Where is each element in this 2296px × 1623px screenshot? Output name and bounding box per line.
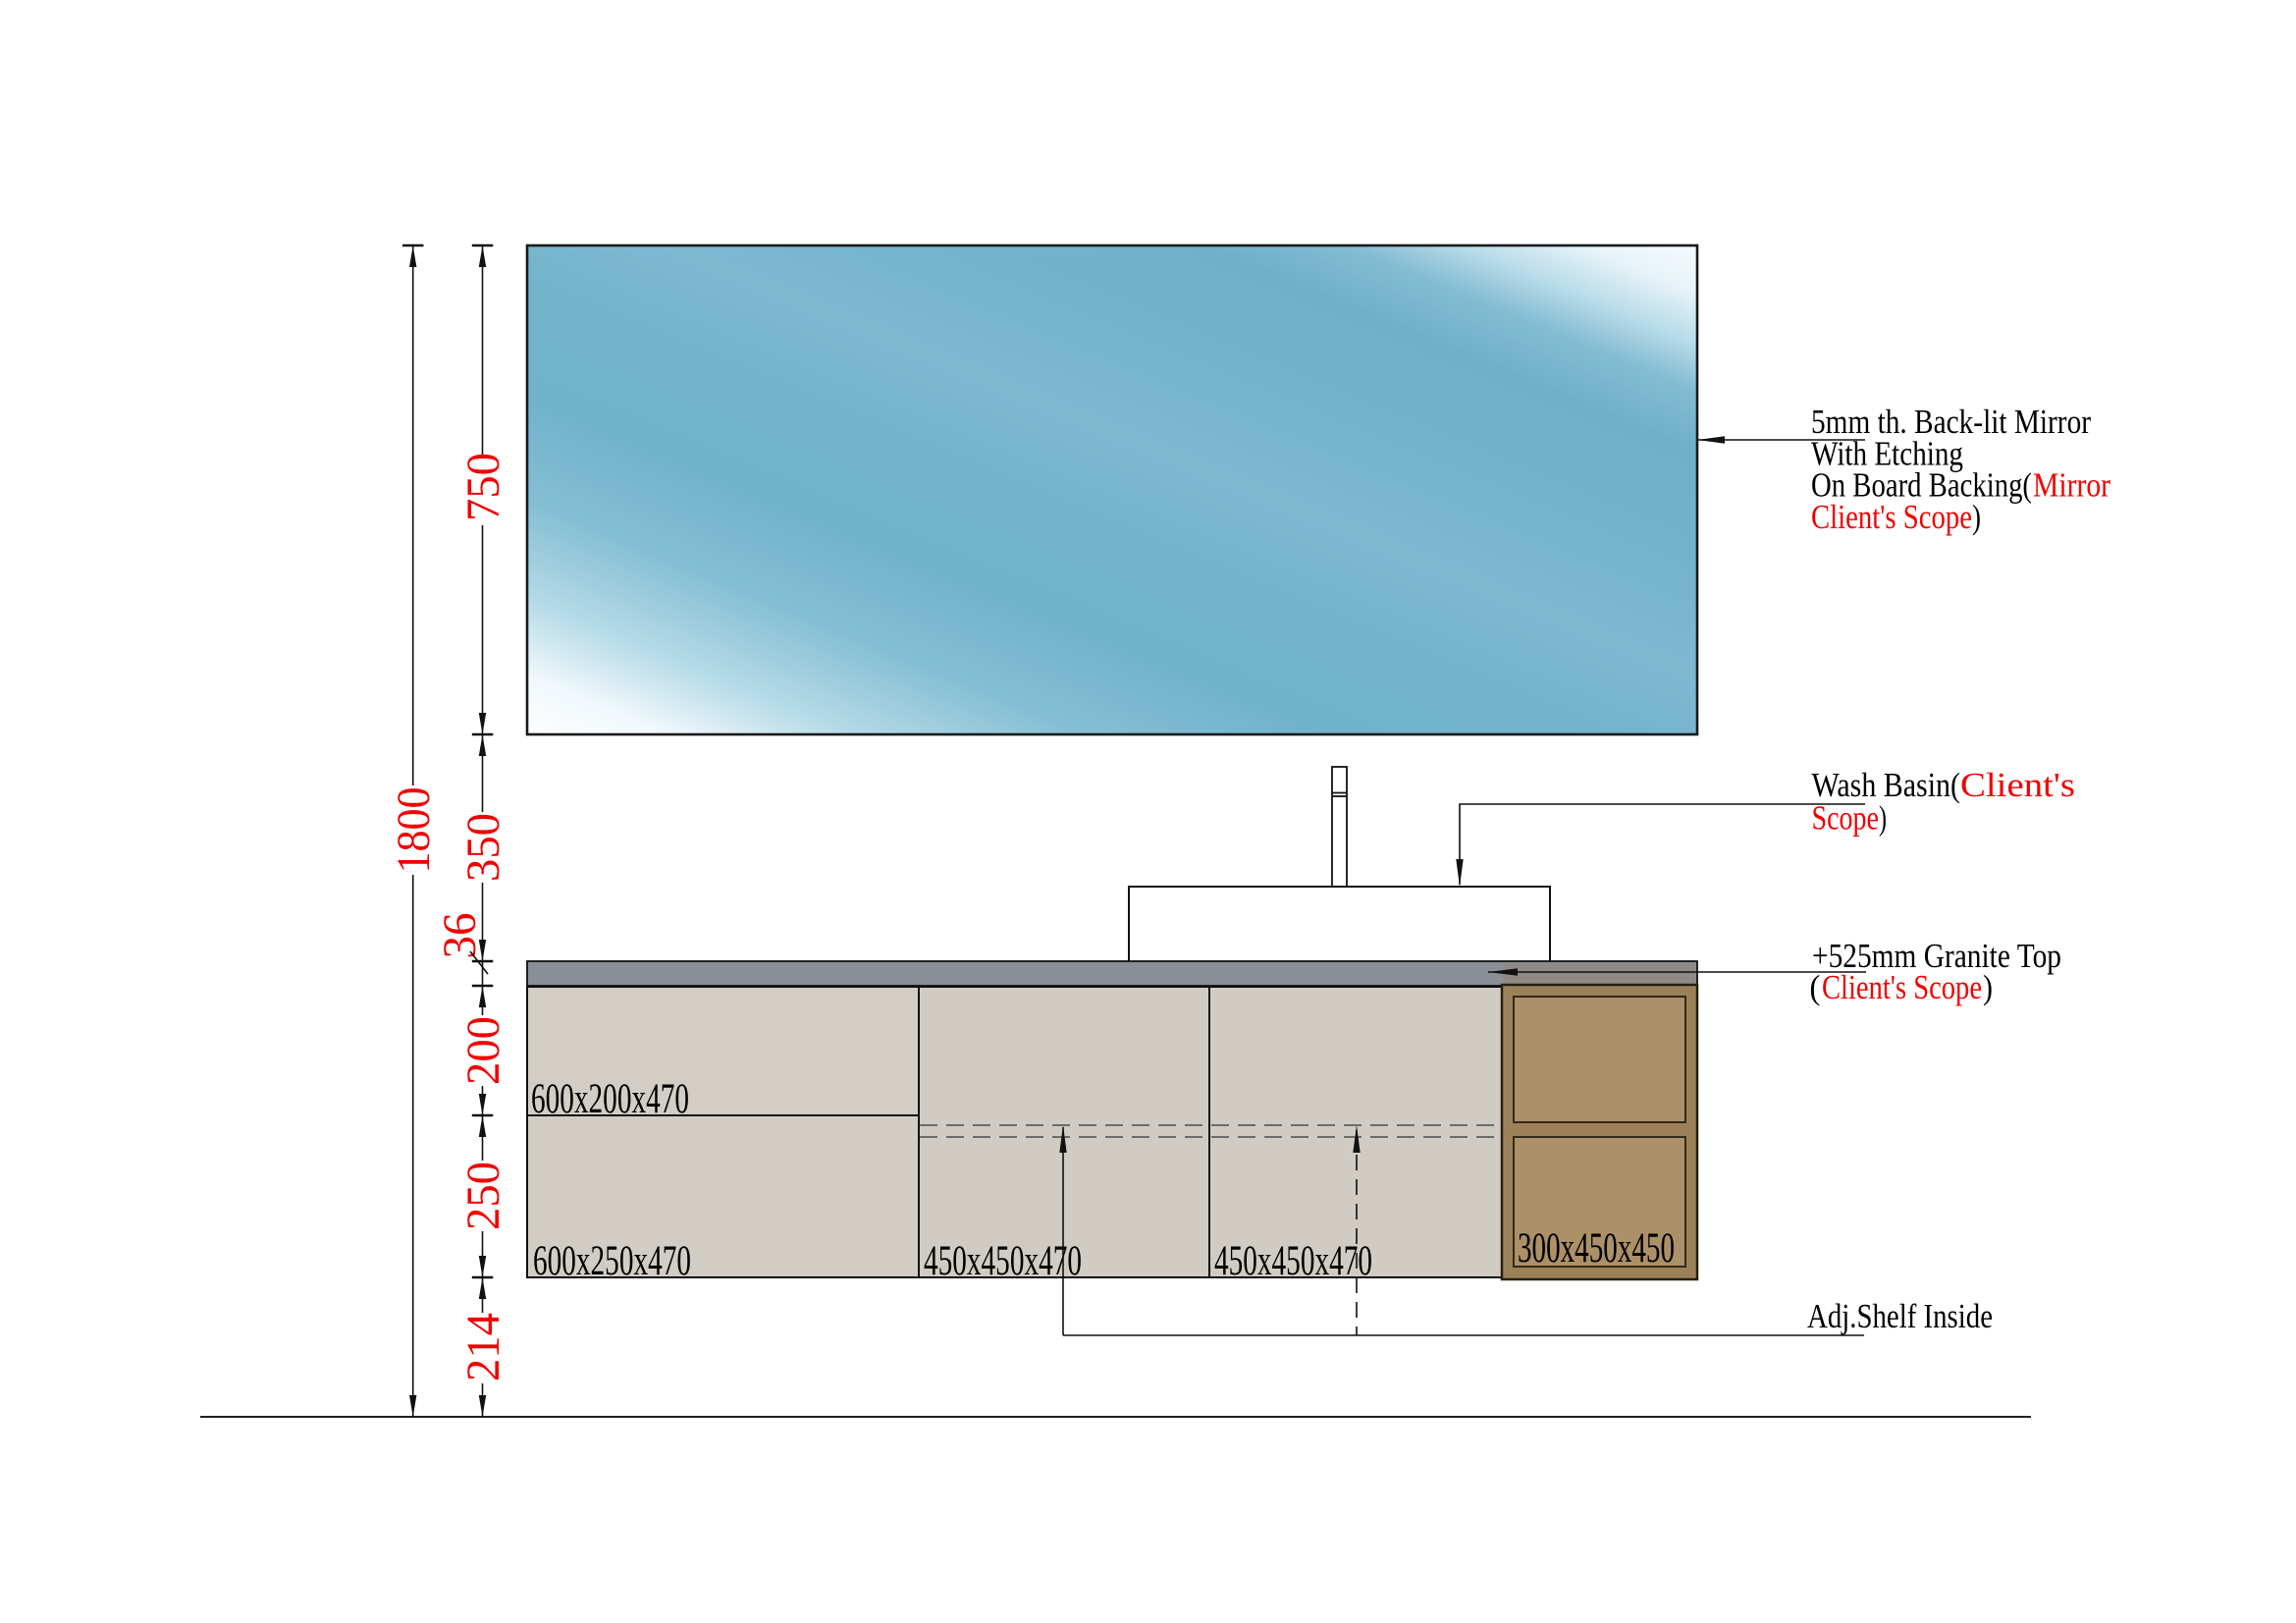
svg-text:1800: 1800 <box>388 787 440 874</box>
svg-text:300x450x450: 300x450x450 <box>1518 1225 1675 1271</box>
svg-text:450x450x470: 450x450x470 <box>924 1238 1082 1284</box>
svg-text:250: 250 <box>457 1162 509 1230</box>
svg-text:): ) <box>1879 799 1887 838</box>
svg-text:200: 200 <box>457 1016 509 1085</box>
svg-text:Scope: Scope <box>1812 799 1880 838</box>
svg-text:): ) <box>1983 968 1993 1006</box>
svg-text:450x450x470: 450x450x470 <box>1214 1238 1372 1284</box>
svg-text:Client's Scope: Client's Scope <box>1811 498 1972 536</box>
svg-text:Client's: Client's <box>1960 766 2075 804</box>
svg-text:214: 214 <box>457 1313 509 1381</box>
svg-text:600x200x470: 600x200x470 <box>531 1076 689 1122</box>
svg-text:Mirror: Mirror <box>2033 466 2110 505</box>
svg-text:): ) <box>1972 498 1981 536</box>
svg-text:600x250x470: 600x250x470 <box>533 1238 691 1284</box>
svg-text:750: 750 <box>457 453 509 521</box>
svg-text:36: 36 <box>434 913 486 959</box>
svg-text:Adj.Shelf Inside: Adj.Shelf Inside <box>1807 1297 1993 1335</box>
svg-text:(: ( <box>1809 968 1820 1006</box>
svg-text:Client's Scope: Client's Scope <box>1822 968 1982 1006</box>
svg-text:350: 350 <box>457 813 509 882</box>
